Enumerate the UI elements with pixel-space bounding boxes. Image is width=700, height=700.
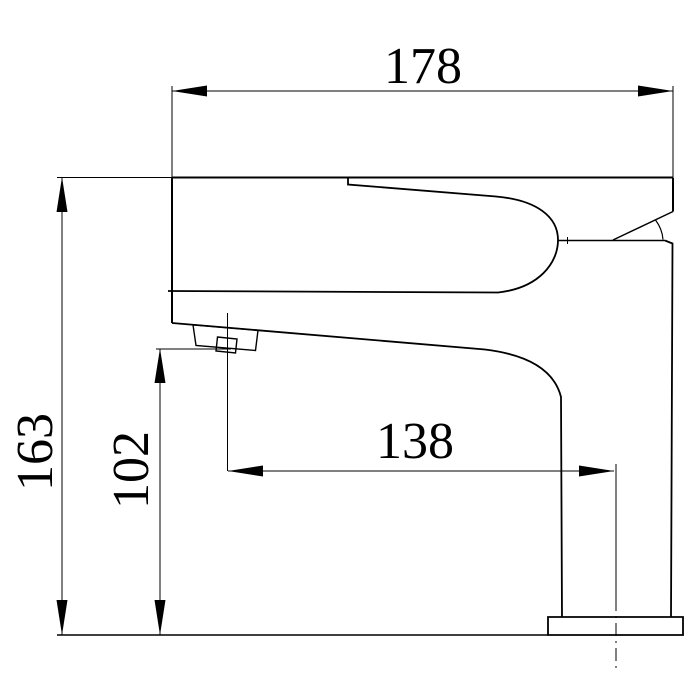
technical-drawing-canvas: 178 163 102 138 bbox=[0, 0, 700, 700]
dim-reach-value: 138 bbox=[376, 413, 454, 470]
dim-width-arrow-right bbox=[638, 86, 673, 97]
dim-reach-arrow-left bbox=[228, 466, 263, 477]
faucet-outline bbox=[57, 177, 683, 635]
cartridge-fillet-arc bbox=[656, 220, 664, 240]
handle-lever-outline bbox=[168, 178, 558, 293]
dim-width-arrow-left bbox=[172, 86, 207, 97]
dimension-overall-height: 163 bbox=[7, 177, 172, 635]
dim-outlet-height-arrow-bottom bbox=[155, 600, 166, 635]
dim-outlet-height-value: 102 bbox=[103, 431, 160, 509]
dimension-overall-width: 178 bbox=[172, 38, 673, 178]
dim-height-arrow-top bbox=[57, 177, 68, 212]
dim-width-value: 178 bbox=[384, 38, 462, 95]
dimension-outlet-reach: 138 bbox=[228, 313, 617, 673]
dim-outlet-height-arrow-top bbox=[155, 349, 166, 384]
faucet-dimension-drawing: 178 163 102 138 bbox=[0, 0, 700, 700]
spout-underside-and-column-left bbox=[172, 323, 562, 618]
aerator-inner-detail bbox=[216, 337, 237, 353]
dim-reach-arrow-right bbox=[579, 466, 614, 477]
dimension-outlet-height: 102 bbox=[103, 349, 231, 636]
dim-height-value: 163 bbox=[7, 413, 64, 491]
dim-height-arrow-bottom bbox=[57, 600, 68, 635]
cartridge-chamfer-line bbox=[613, 212, 673, 241]
column-right-edge bbox=[665, 241, 673, 618]
